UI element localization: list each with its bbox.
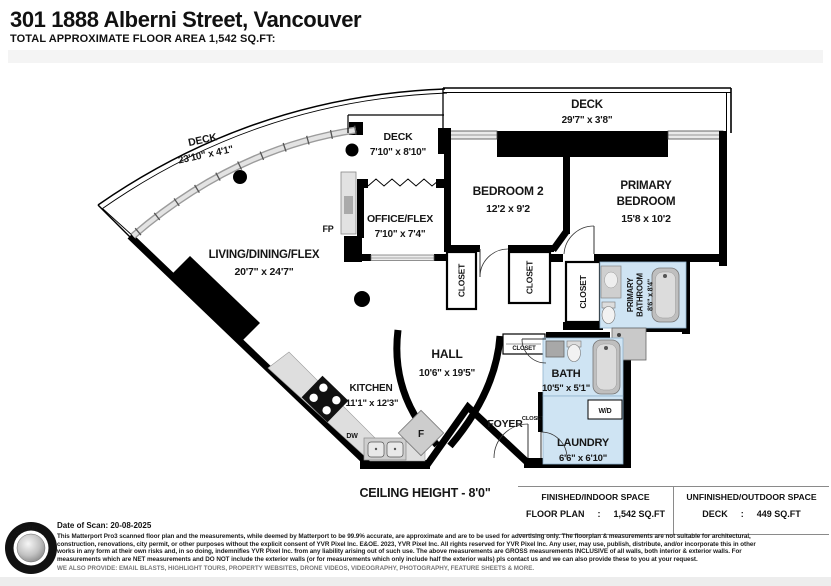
laundry: W/D LAUNDRY 6'6" x 6'10" bbox=[543, 396, 623, 464]
wall bbox=[497, 131, 668, 157]
header: 301 1888 Alberni Street, Vancouver TOTAL… bbox=[10, 8, 361, 45]
deck-left-labels: DECK 23'10" x 4'1" bbox=[174, 128, 235, 166]
kitchen: DW F KITCHEN 11'1" x 12'3" bbox=[268, 352, 444, 461]
deck-left-dims: 23'10" x 4'1" bbox=[177, 144, 235, 167]
room-dims-bath: 10'5" x 5'1" bbox=[542, 383, 590, 394]
scan-band bbox=[8, 50, 823, 63]
room-dims-laundry: 6'6" x 6'10" bbox=[559, 453, 607, 464]
closet-label: CLOSET bbox=[578, 274, 588, 308]
accordion-window bbox=[368, 179, 438, 186]
entry-notch-wall bbox=[427, 407, 528, 465]
wall-diag-bed2 bbox=[553, 232, 566, 250]
room-label-bedroom2: BEDROOM 2 bbox=[473, 184, 544, 198]
bath: BATH 10'5" x 5'1" bbox=[542, 338, 623, 396]
fireplace-label: FP bbox=[322, 224, 333, 234]
yvr-pixel-logo: YVR PIXEL bbox=[3, 521, 59, 577]
deck-mid-label: DECK bbox=[384, 131, 414, 143]
page-title: 301 1888 Alberni Street, Vancouver bbox=[10, 8, 361, 31]
disclaimer-line: construction, renovations, city permit, … bbox=[57, 541, 829, 549]
room-dims-office: 7'10" x 7'4" bbox=[375, 229, 426, 240]
shower bbox=[546, 341, 564, 357]
closet-label: CLOSET bbox=[457, 263, 467, 297]
column bbox=[346, 144, 359, 157]
logo-sphere-icon bbox=[17, 534, 45, 562]
closet-label: CLOSET bbox=[525, 260, 535, 294]
closet-linen: CLOSET bbox=[503, 334, 545, 354]
area-indoor-heading: FINISHED/INDOOR SPACE bbox=[541, 492, 649, 502]
room-label-foyer: FOYER bbox=[487, 418, 523, 430]
office-window bbox=[371, 255, 434, 261]
curved-glass-wall bbox=[133, 130, 356, 236]
door-bedroom2 bbox=[480, 249, 508, 277]
disclaimer-line: This Matterport Pro3 scanned floor plan … bbox=[57, 533, 829, 541]
ceiling-height-note: CEILING HEIGHT - 8'0" bbox=[359, 486, 490, 500]
window-bedroom2 bbox=[445, 131, 497, 139]
room-dims-living: 20'7" x 24'7" bbox=[234, 266, 293, 278]
room-dims-bedroom2: 12'2 x 9'2 bbox=[486, 203, 530, 215]
disclaimer-line: works in any form at their own risks and… bbox=[57, 548, 829, 556]
bottom-band bbox=[0, 577, 831, 586]
disclaimer: This Matterport Pro3 scanned floor plan … bbox=[57, 533, 829, 563]
scan-date: Date of Scan: 20-08-2025 bbox=[57, 521, 151, 530]
fireplace bbox=[341, 172, 356, 234]
area-indoor: FINISHED/INDOOR SPACE FLOOR PLAN : 1,542… bbox=[518, 487, 673, 534]
room-label-bath: BATH bbox=[552, 368, 581, 380]
disclaimer-line: measurements which are NET measurements … bbox=[57, 556, 829, 564]
closet-a: CLOSET bbox=[447, 252, 476, 309]
area-outdoor-heading: UNFINISHED/OUTDOOR SPACE bbox=[686, 492, 816, 502]
area-outdoor-value: 449 SQ.FT bbox=[757, 509, 801, 519]
room-dims-kitchen: 11'1" x 12'3" bbox=[346, 398, 399, 409]
room-label-primary-2: BEDROOM bbox=[617, 196, 676, 208]
room-label-office: OFFICE/FLEX bbox=[367, 213, 433, 225]
kitchen-sink bbox=[364, 438, 406, 460]
dishwasher-label: DW bbox=[346, 433, 358, 440]
area-indoor-label: FLOOR PLAN bbox=[526, 509, 585, 519]
primary-bathroom: PRIMARY BATHROOM 8'6" x 8'4" bbox=[600, 262, 686, 328]
services-note: WE ALSO PROVIDE: EMAIL BLASTS, HIGHLIGHT… bbox=[57, 565, 534, 572]
room-label-living: LIVING/DINING/FLEX bbox=[209, 249, 320, 261]
area-outdoor-label: DECK bbox=[702, 509, 728, 519]
room-label-primary-1: PRIMARY bbox=[620, 180, 672, 192]
washer-dryer-label: W/D bbox=[598, 408, 611, 415]
closet-c: CLOSET bbox=[566, 262, 600, 322]
room-label-hall: HALL bbox=[431, 347, 462, 361]
page-subtitle: TOTAL APPROXIMATE FLOOR AREA 1,542 SQ.FT… bbox=[10, 33, 361, 45]
area-indoor-value: 1,542 SQ.FT bbox=[613, 509, 665, 519]
column bbox=[354, 291, 370, 307]
room-label-primary-bath-1: PRIMARY bbox=[626, 277, 635, 312]
window-primary bbox=[668, 131, 723, 139]
fridge-label: F bbox=[418, 429, 424, 440]
area-indoor-colon: : bbox=[597, 509, 600, 519]
deck-top-label: DECK bbox=[571, 99, 604, 111]
closet-label-foyer: CLOSET bbox=[522, 416, 545, 422]
room-label-primary-bath-2: BATHROOM bbox=[636, 273, 645, 317]
room-dims-hall: 10'6" x 19'5" bbox=[419, 368, 476, 379]
area-outdoor: UNFINISHED/OUTDOOR SPACE DECK : 449 SQ.F… bbox=[673, 487, 829, 534]
deck-left-label: DECK bbox=[187, 131, 218, 149]
area-outdoor-colon: : bbox=[741, 509, 744, 519]
deck-mid-dims: 7'10" x 8'10" bbox=[370, 147, 427, 158]
deck-top-dims: 29'7" x 3'8" bbox=[562, 115, 613, 126]
closet-b: CLOSET bbox=[509, 252, 550, 303]
area-table: FINISHED/INDOOR SPACE FLOOR PLAN : 1,542… bbox=[518, 486, 829, 535]
room-label-kitchen: KITCHEN bbox=[349, 383, 392, 394]
room-dims-primary-bath: 8'6" x 8'4" bbox=[646, 279, 655, 311]
column bbox=[233, 170, 247, 184]
room-dims-primary: 15'8 x 10'2 bbox=[621, 213, 671, 225]
